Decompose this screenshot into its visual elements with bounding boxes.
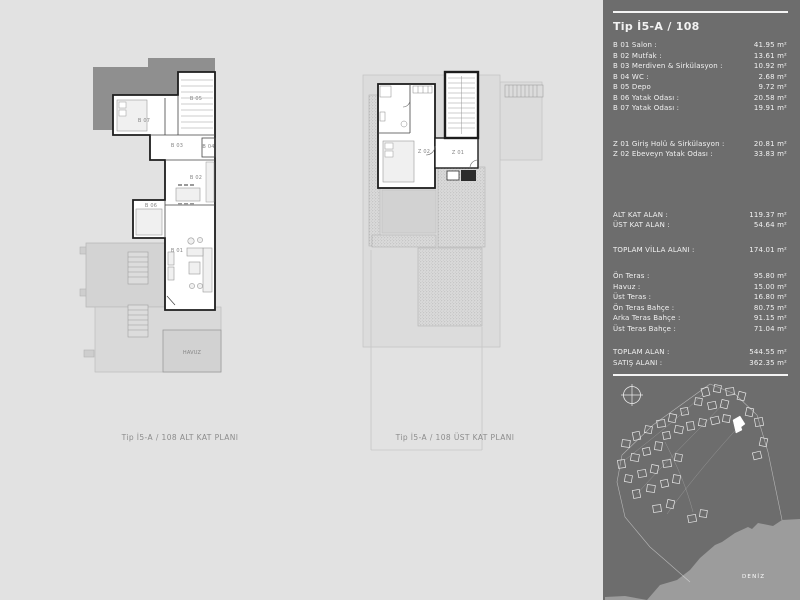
table-row: B 02 Mutfak :13.61 m² — [613, 51, 787, 62]
floor-plans-svg: B 05 B 07 B 03 B 04 B 02 B 06 B 01 HAVUZ — [0, 0, 603, 600]
table-row: SATIŞ ALANI :362.35 m² — [613, 358, 787, 369]
divider-bottom — [613, 374, 788, 376]
table-row: Üst Teras Bahçe :71.04 m² — [613, 324, 787, 335]
room-label-z02: Z 02 — [418, 149, 430, 155]
table-row: Z 01 Giriş Holü & Sirkülasyon :20.81 m² — [613, 139, 787, 150]
terrace-upper — [86, 243, 168, 307]
room-label-z01: Z 01 — [452, 150, 464, 156]
room-label-b07: B 07 — [138, 118, 150, 124]
room-label-b05: B 05 — [190, 96, 202, 102]
room-label-b04: B 04 — [202, 144, 214, 150]
table-row: Havuz :15.00 m² — [613, 282, 787, 293]
table-row: B 06 Yatak Odası :20.58 m² — [613, 93, 787, 104]
table-row: ALT KAT ALAN :119.37 m² — [613, 210, 787, 221]
sidebar-title: Tip İ5-A / 108 — [613, 20, 788, 33]
group-z-rooms: Z 01 Giriş Holü & Sirkülasyon :20.81 m² … — [613, 139, 787, 160]
room-label-b03: B 03 — [171, 143, 183, 149]
site-roads — [625, 394, 743, 514]
divider-top — [613, 11, 788, 13]
right-floor-plan: Z 02 Z 01 — [363, 72, 543, 450]
table-row: B 07 Yatak Odası :19.91 m² — [613, 103, 787, 114]
caption-ust-kat: Tip İ5-A / 108 ÜST KAT PLANI — [395, 433, 515, 442]
table-row: B 05 Depo9.72 m² — [613, 82, 787, 93]
brochure-page: B 05 B 07 B 03 B 04 B 02 B 06 B 01 HAVUZ — [0, 0, 800, 600]
table-row: Ön Teras Bahçe :80.75 m² — [613, 303, 787, 314]
table-row: Ön Teras :95.80 m² — [613, 271, 787, 282]
group-b-rooms: B 01 Salon :41.95 m² B 02 Mutfak :13.61 … — [613, 40, 787, 114]
table-row: TOPLAM ALAN :544.55 m² — [613, 347, 787, 358]
table-row: Üst Teras :16.80 m² — [613, 292, 787, 303]
group-kat-alan: ALT KAT ALAN :119.37 m² ÜST KAT ALAN :54… — [613, 210, 787, 231]
sea-label: DENİZ — [742, 573, 765, 580]
group-teras: Ön Teras :95.80 m² Havuz :15.00 m² Üst T… — [613, 271, 787, 334]
pool-label: HAVUZ — [183, 350, 202, 356]
room-label-b06: B 06 — [145, 203, 157, 209]
terrace-front — [382, 190, 436, 233]
site-buildings — [617, 385, 767, 523]
room-label-b01: B 01 — [171, 248, 183, 254]
external-stair — [505, 85, 543, 97]
table-row: B 04 WC :2.68 m² — [613, 72, 787, 83]
compass-icon — [621, 384, 643, 406]
table-row: B 01 Salon :41.95 m² — [613, 40, 787, 51]
room-label-b02: B 02 — [190, 175, 202, 181]
area-table: B 01 Salon :41.95 m² B 02 Mutfak :13.61 … — [613, 40, 787, 368]
site-map: DENİZ — [605, 382, 800, 600]
table-row: TOPLAM VİLLA ALANI :174.01 m² — [613, 245, 787, 256]
table-row: Arka Teras Bahçe :91.15 m² — [613, 313, 787, 324]
table-row: ÜST KAT ALAN :54.64 m² — [613, 220, 787, 231]
left-floor-plan: B 05 B 07 B 03 B 04 B 02 B 06 B 01 HAVUZ — [80, 58, 221, 372]
sea-area — [605, 519, 800, 600]
caption-alt-kat: Tip İ5-A / 108 ALT KAT PLANI — [121, 433, 239, 442]
table-row: B 03 Merdiven & Sirkülasyon :10.92 m² — [613, 61, 787, 72]
table-row: Z 02 Ebeveyn Yatak Odası :33.83 m² — [613, 149, 787, 160]
group-toplam: TOPLAM ALAN :544.55 m² SATIŞ ALANI :362.… — [613, 347, 787, 368]
group-toplam-villa: TOPLAM VİLLA ALANI :174.01 m² — [613, 245, 787, 256]
highlighted-villa — [733, 416, 745, 433]
info-sidebar: Tip İ5-A / 108 B 01 Salon :41.95 m² B 02… — [603, 0, 800, 600]
